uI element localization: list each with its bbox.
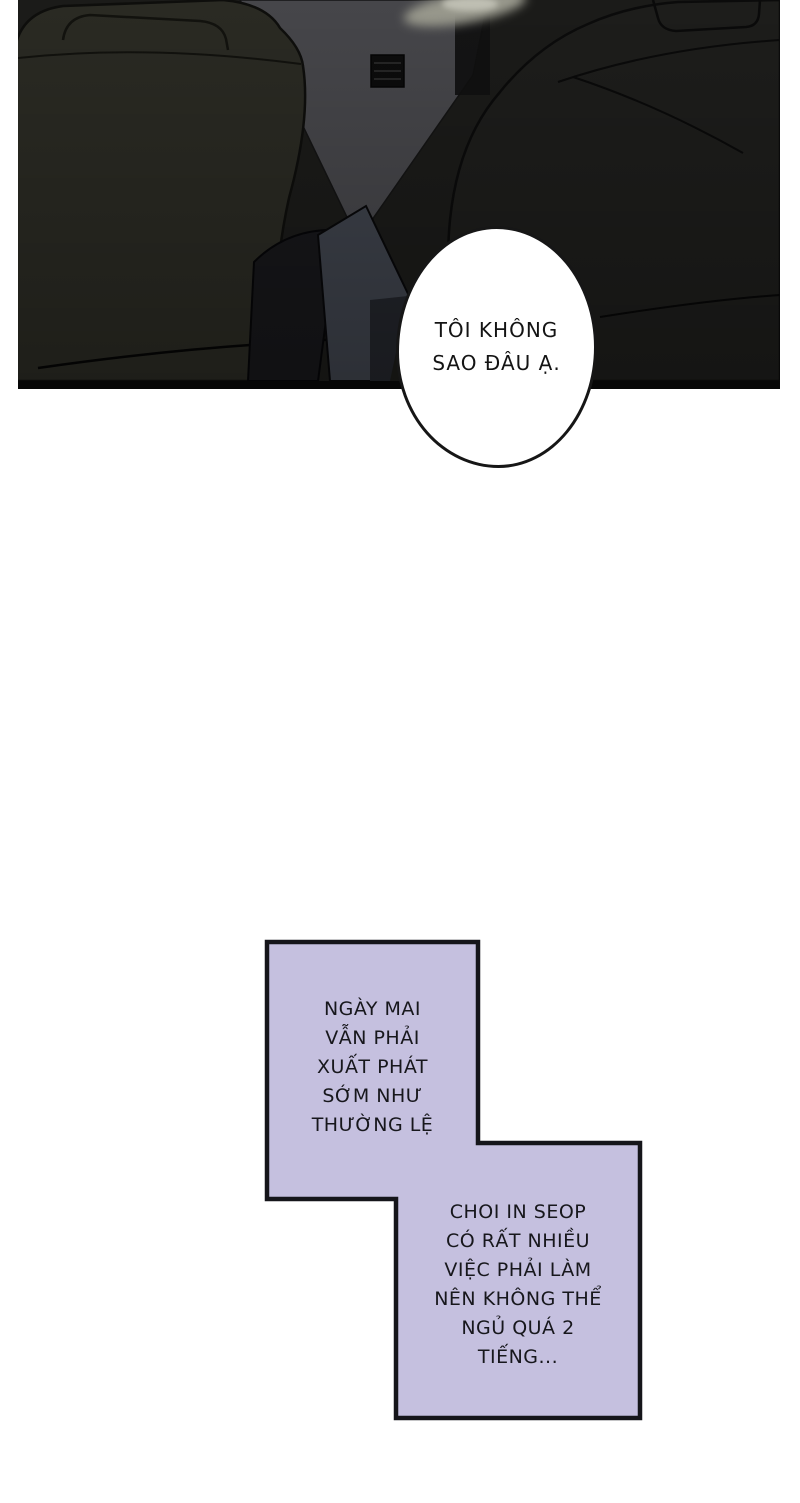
speech-bubble: TÔI KHÔNG SAO ĐÂU Ạ.	[396, 226, 597, 468]
caption-line: TIẾNG...	[400, 1343, 636, 1372]
caption-line: VẪN PHẢI	[271, 1024, 474, 1053]
caption-box-2: CHOI IN SEOP CÓ RẤT NHIỀU VIỆC PHẢI LÀM …	[400, 1198, 636, 1372]
caption-line: NGÀY MAI	[271, 995, 474, 1024]
caption-line: CHOI IN SEOP	[400, 1198, 636, 1227]
caption-line: XUẤT PHÁT	[271, 1053, 474, 1082]
caption-line: NÊN KHÔNG THỂ	[400, 1285, 636, 1314]
caption-line: THƯỜNG LỆ	[271, 1111, 474, 1140]
caption-line: VIỆC PHẢI LÀM	[400, 1256, 636, 1285]
caption-line: CÓ RẤT NHIỀU	[400, 1227, 636, 1256]
speech-line: SAO ĐÂU Ạ.	[432, 347, 560, 380]
comic-page: TÔI KHÔNG SAO ĐÂU Ạ. NGÀY MAI VẪN PHẢI X…	[0, 0, 800, 1503]
caption-line: SỚM NHƯ	[271, 1082, 474, 1111]
speech-line: TÔI KHÔNG	[435, 314, 559, 347]
caption-line: NGỦ QUÁ 2	[400, 1314, 636, 1343]
caption-box-1: NGÀY MAI VẪN PHẢI XUẤT PHÁT SỚM NHƯ THƯỜ…	[271, 995, 474, 1140]
